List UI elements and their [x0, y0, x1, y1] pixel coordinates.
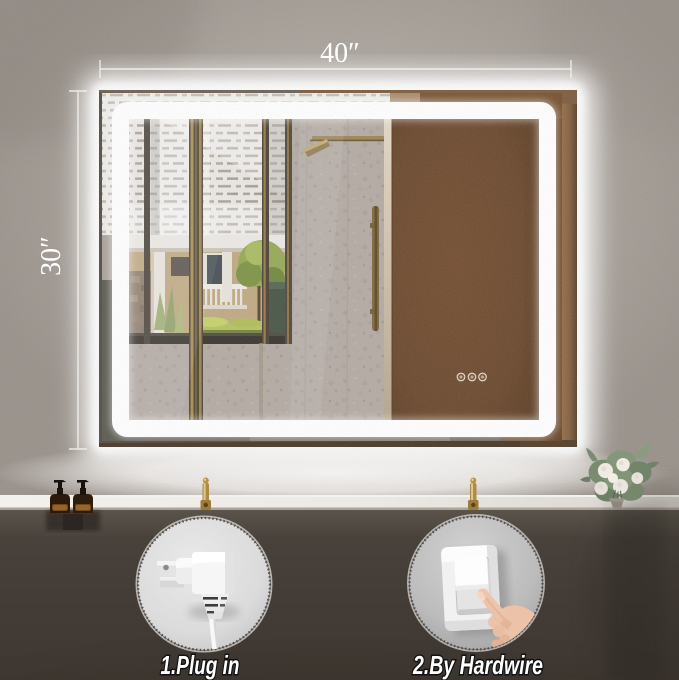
svg-text:2.By Hardwire: 2.By Hardwire	[412, 650, 543, 680]
svg-text:1.Plug in: 1.Plug in	[161, 650, 240, 680]
svg-text:40″: 40″	[320, 38, 360, 69]
svg-text:30″: 30″	[36, 236, 67, 276]
